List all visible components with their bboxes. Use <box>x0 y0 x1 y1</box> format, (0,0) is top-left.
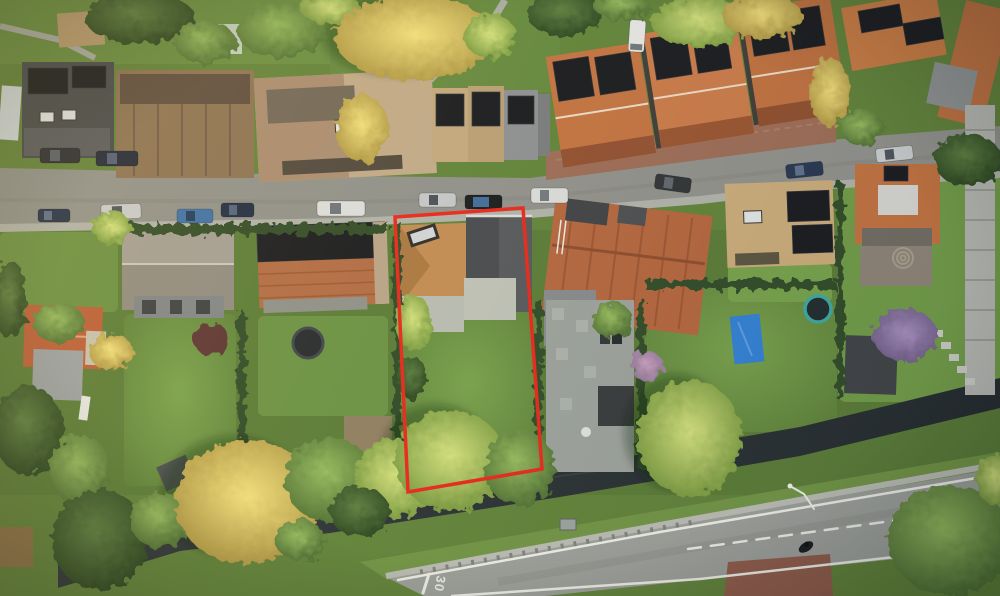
blue-tarp <box>730 314 765 365</box>
rear-hedge-row <box>645 280 835 289</box>
solar-array <box>72 66 106 88</box>
garden-table <box>581 427 591 437</box>
parked-car-8 <box>531 188 568 203</box>
solar-array <box>594 52 636 95</box>
roof-terrace <box>120 74 250 104</box>
parked-van-14 <box>628 19 646 52</box>
parked-car-5 <box>317 201 365 216</box>
reed-bank <box>0 527 33 567</box>
window <box>142 300 156 314</box>
solar-array <box>508 96 534 124</box>
orange-hip-house-far-right <box>855 164 940 286</box>
tree <box>32 302 84 342</box>
skylight <box>62 110 76 120</box>
lamp-head <box>788 484 793 489</box>
dark-grey-house-top-left <box>22 62 114 158</box>
tree <box>840 110 884 146</box>
flat-roof-centre <box>878 185 918 215</box>
solar-house-left-of-plot <box>257 222 390 313</box>
plot-flat-roof-rear <box>464 278 516 320</box>
aerial-photo-scene: 30 <box>0 0 1000 596</box>
maroon-tree <box>194 324 230 356</box>
grey-outbuilding <box>926 62 978 112</box>
parked-car-6 <box>419 193 456 207</box>
skylight <box>744 211 762 224</box>
window <box>170 300 182 314</box>
garden-divider-hedge <box>836 182 844 398</box>
parked-car-12 <box>40 148 80 163</box>
utility-box <box>560 519 576 530</box>
purple-bush <box>873 309 937 361</box>
golden-bush <box>89 334 133 370</box>
window-band <box>735 252 779 266</box>
tree <box>485 430 555 506</box>
solar-array <box>792 224 833 253</box>
golden-tree-right <box>810 58 850 126</box>
grey-gable-house <box>122 228 234 318</box>
tree <box>52 490 148 590</box>
front-hedge-row <box>120 224 390 234</box>
parked-car-3 <box>177 209 213 223</box>
parked-car-1 <box>38 209 70 222</box>
tree <box>464 14 516 58</box>
road-speed-marking: 30 <box>431 574 449 593</box>
solar-array <box>436 94 464 126</box>
trampoline-right <box>805 296 831 322</box>
golden-tree-small <box>336 94 388 162</box>
tan-solar-house-right <box>725 180 836 268</box>
lawn-neighbour-left <box>258 316 388 416</box>
blossom-tree <box>631 351 663 381</box>
trampoline-left <box>293 328 323 358</box>
solar-array <box>553 56 595 101</box>
solar-array <box>884 166 908 181</box>
tree <box>934 134 1000 186</box>
rear-wall <box>862 228 932 246</box>
skylight <box>40 112 54 122</box>
aerial-photo-stage: 30 <box>0 0 1000 596</box>
solar-array <box>472 92 500 126</box>
parked-car-7 <box>465 195 502 209</box>
tree <box>638 380 742 496</box>
parked-car-4 <box>221 203 254 217</box>
tree <box>592 302 632 338</box>
pale-roof-house <box>0 85 22 140</box>
tree <box>175 20 235 64</box>
solar-array <box>787 190 830 221</box>
window <box>196 300 210 314</box>
dark-dormer <box>617 205 647 226</box>
solar-roof-terrace-houses <box>432 86 550 162</box>
tree <box>92 212 132 244</box>
tree-by-canal <box>330 487 390 537</box>
parked-car-13 <box>96 151 138 166</box>
grey-roof-sliver <box>538 94 550 156</box>
solar-array <box>28 68 68 94</box>
tree-by-canal <box>275 520 325 560</box>
gable-end <box>373 222 390 304</box>
